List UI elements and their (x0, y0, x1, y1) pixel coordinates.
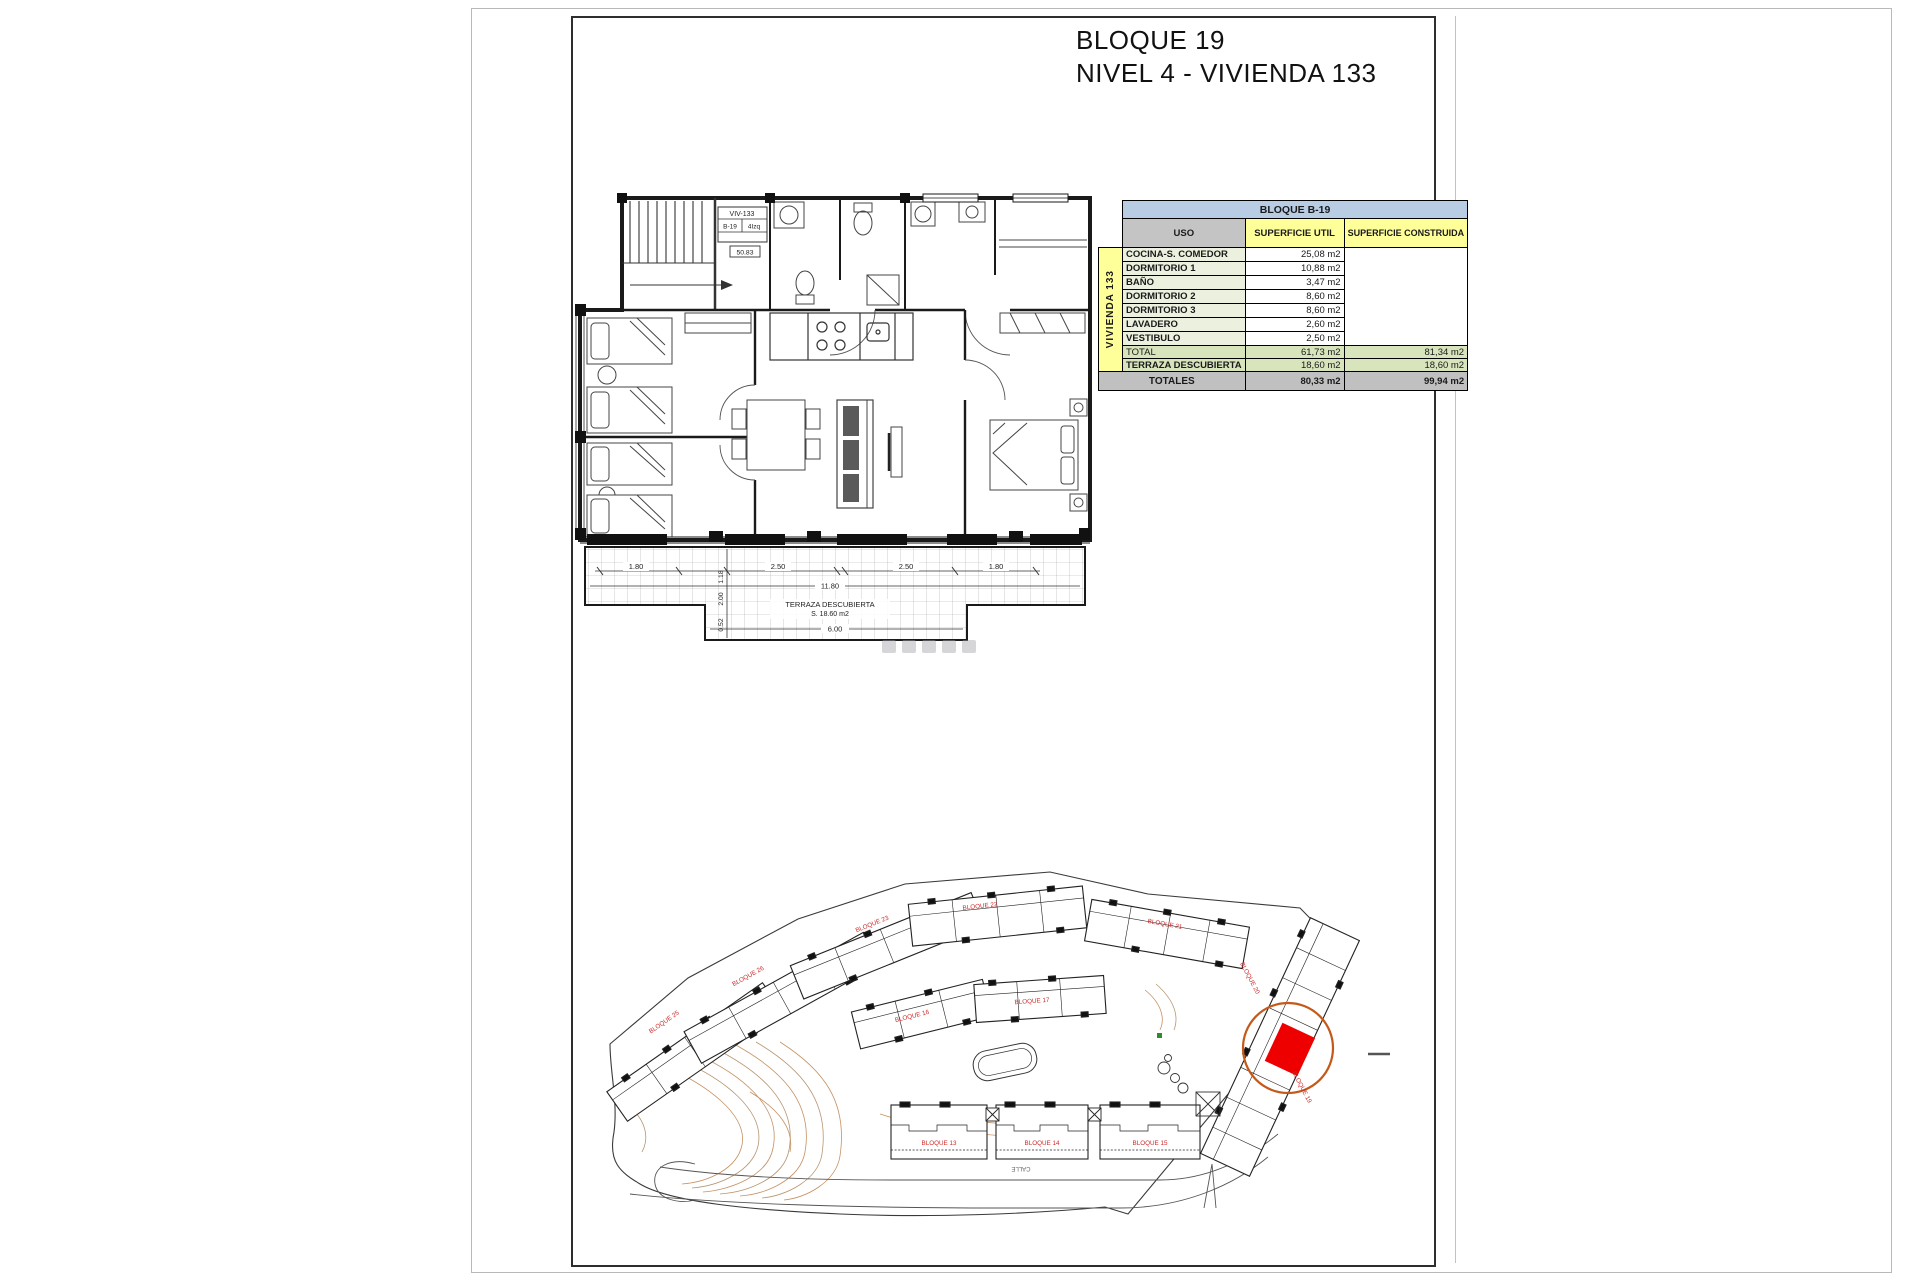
building-bloque-13: BLOQUE 13 (891, 1102, 987, 1159)
site-label-bloque-25: BLOQUE 25 (648, 1009, 681, 1035)
page-title: BLOQUE 19 NIVEL 4 - VIVIENDA 133 (1076, 24, 1377, 89)
terraza-row-util: 18,60 m2 (1245, 359, 1344, 372)
site-label-bloque-14: BLOQUE 14 (1025, 1140, 1060, 1147)
table-row-uso: DORMITORIO 1 (1123, 262, 1246, 276)
unit-position-label: 4Izq (748, 224, 761, 231)
building-bloque-16: BLOQUE 16 (851, 976, 992, 1050)
watermark (882, 640, 976, 653)
unit-id-label: VIV-133 (730, 211, 755, 218)
row-group-label: VIVIENDA 133 (1099, 248, 1123, 372)
unit-block-label: B-19 (723, 224, 737, 231)
playground (1157, 1033, 1220, 1116)
svg-text:1.18: 1.18 (718, 570, 725, 583)
table-row-util: 8,60 m2 (1245, 304, 1344, 318)
building-bloque-14: BLOQUE 14 (996, 1102, 1088, 1159)
col-header-construida: SUPERFICIE CONSTRUIDA (1344, 219, 1468, 248)
table-row-uso: BAÑO (1123, 276, 1246, 290)
svg-text:2.50: 2.50 (771, 562, 786, 571)
table-row-util: 3,47 m2 (1245, 276, 1344, 290)
site-label-bloque-15: BLOQUE 15 (1133, 1140, 1168, 1147)
table-row-util: 10,88 m2 (1245, 262, 1344, 276)
terraza-row-construida: 18,60 m2 (1344, 359, 1468, 372)
total-row-construida: 81,34 m2 (1344, 346, 1468, 359)
swimming-pool (971, 1041, 1040, 1084)
table-row-uso: DORMITORIO 3 (1123, 304, 1246, 318)
building-bloque-22: BLOQUE 22 (908, 883, 1087, 948)
terraza-row-label: TERRAZA DESCUBIERTA (1123, 359, 1246, 372)
col-header-util: SUPERFICIE UTIL (1245, 219, 1344, 248)
table-block-header: BLOQUE B-19 (1123, 201, 1468, 219)
table-row-util: 2,50 m2 (1245, 332, 1344, 346)
terrace-label: TERRAZA DESCUBIERTA S. 18.60 m2 (770, 599, 890, 619)
area-table: BLOQUE B-19 USO SUPERFICIE UTIL SUPERFIC… (1098, 200, 1468, 391)
svg-text:S. 18.60 m2: S. 18.60 m2 (811, 611, 849, 618)
tv-stand (889, 427, 902, 477)
site-label-bloque-13: BLOQUE 13 (922, 1140, 957, 1147)
col-header-uso: USO (1123, 219, 1246, 248)
svg-text:TERRAZA DESCUBIERTA: TERRAZA DESCUBIERTA (785, 600, 874, 609)
table-row-util: 2,60 m2 (1245, 318, 1344, 332)
total-row-label: TOTAL (1123, 346, 1246, 359)
street-name-label: CALLE (1011, 1165, 1030, 1171)
building-bloque-15: BLOQUE 15 (1100, 1102, 1200, 1159)
totales-row-construida: 99,94 m2 (1344, 372, 1468, 391)
drawing-sheet-page: BLOQUE 19 NIVEL 4 - VIVIENDA 133 (0, 0, 1920, 1280)
table-row-util: 8,60 m2 (1245, 290, 1344, 304)
svg-text:6.00: 6.00 (828, 625, 843, 634)
title-line-1: BLOQUE 19 (1076, 24, 1377, 57)
floor-plan: VIV-133 B-19 4Izq 50.83 (575, 185, 1105, 665)
table-row-util: 25,08 m2 (1245, 248, 1344, 262)
sofa (837, 400, 873, 508)
svg-text:11.80: 11.80 (821, 582, 839, 591)
tree-marker (1157, 1033, 1162, 1038)
building-bloque-17: BLOQUE 17 (974, 973, 1107, 1025)
building-bloque-21: BLOQUE 21 (1084, 896, 1250, 970)
totales-row-util: 80,33 m2 (1245, 372, 1344, 391)
master-wardrobe (1000, 313, 1085, 333)
table-row-uso: VESTIBULO (1123, 332, 1246, 346)
site-plan: BLOQUE 25 BLOQUE 26 (600, 862, 1430, 1242)
table-row-uso: COCINA-S. COMEDOR (1123, 248, 1246, 262)
svg-text:2.00: 2.00 (718, 592, 725, 605)
title-line-2: NIVEL 4 - VIVIENDA 133 (1076, 57, 1377, 90)
construida-empty-cell (1344, 248, 1468, 346)
svg-text:1.80: 1.80 (989, 562, 1004, 571)
total-row-util: 61,73 m2 (1245, 346, 1344, 359)
svg-text:0.52: 0.52 (718, 618, 725, 631)
totales-row-label: TOTALES (1099, 372, 1246, 391)
site-label-bloque-20: BLOQUE 20 (1238, 961, 1261, 996)
svg-text:2.50: 2.50 (899, 562, 914, 571)
table-row-uso: LAVADERO (1123, 318, 1246, 332)
unit-area-code: 50.83 (736, 250, 753, 257)
svg-text:1.80: 1.80 (629, 562, 644, 571)
table-row-uso: DORMITORIO 2 (1123, 290, 1246, 304)
